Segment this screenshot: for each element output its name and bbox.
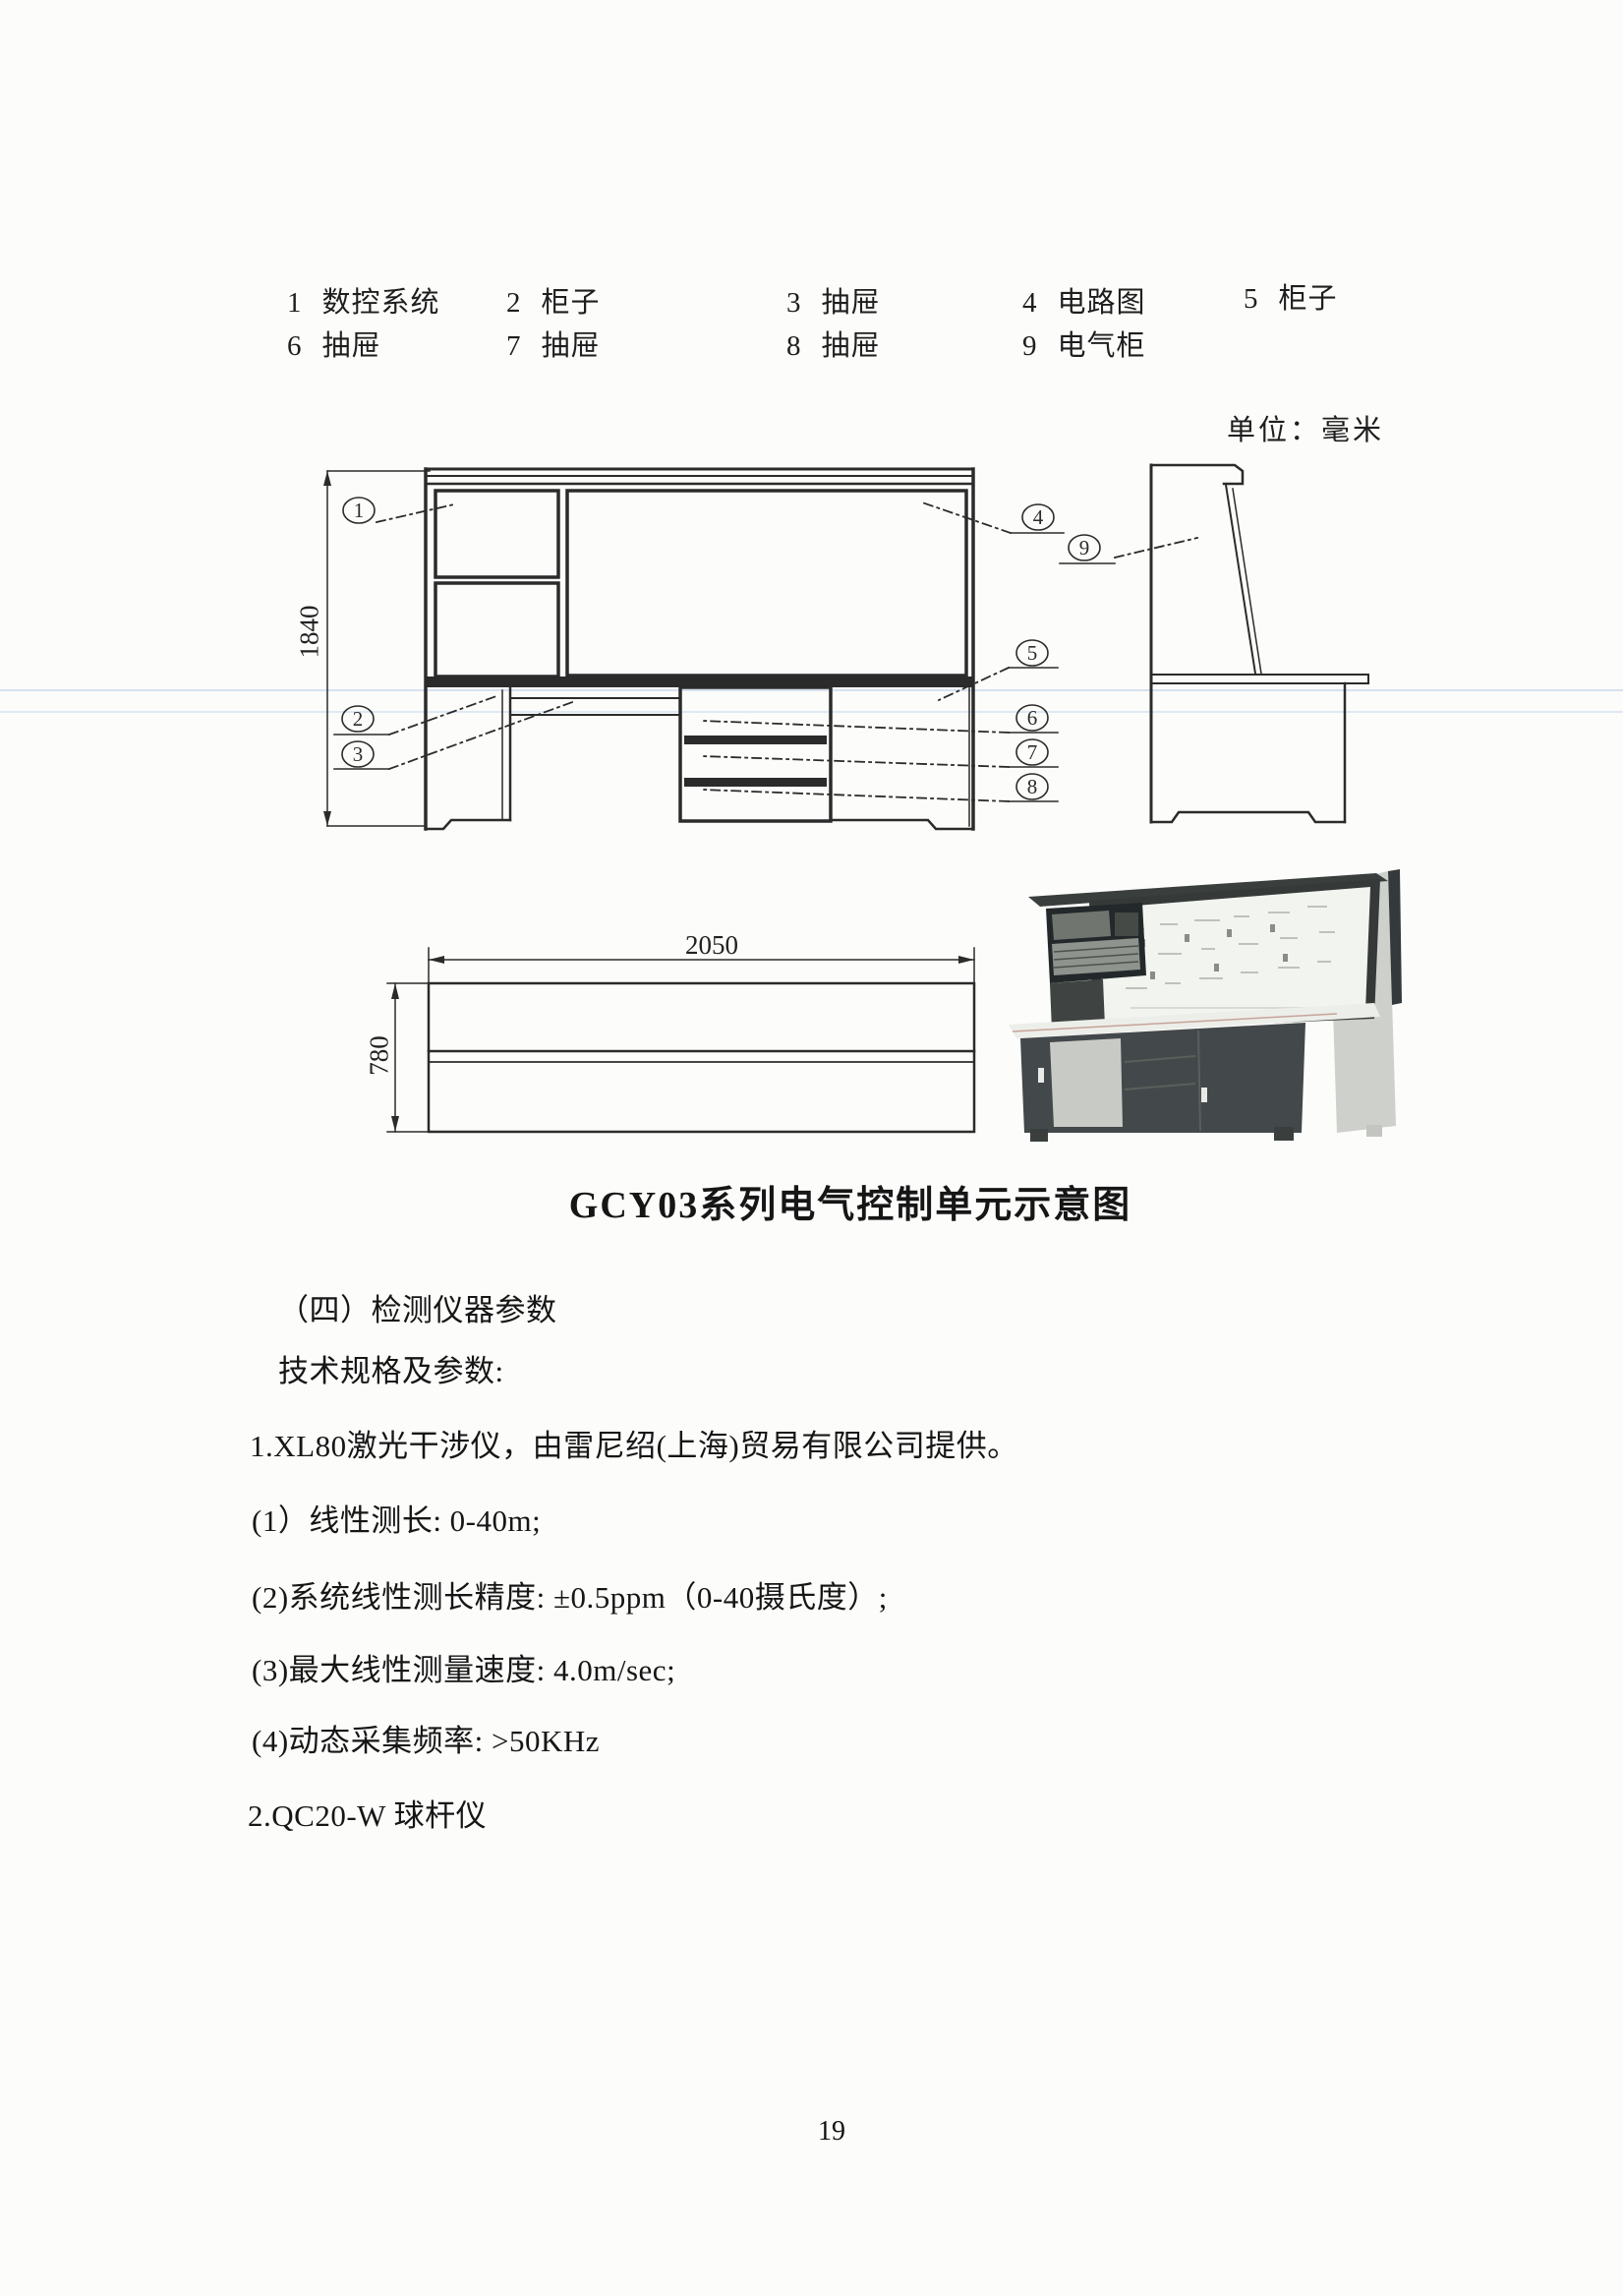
scanned-document-page: 1数控系统 2柜子 3抽屉 4电路图 5柜子 6抽屉 7抽屉 8抽屉 9电气柜 … [0,0,1623,2296]
legend-label: 抽屉 [322,330,381,362]
figure-caption: GCY03系列电气控制单元示意图 [452,1174,1248,1228]
body-line: (2)系统线性测长精度: ±0.5ppm（0-40摄氏度）; [252,1577,888,1619]
dim-depth-780: 780 [365,1012,395,1100]
callout-5: 5 [1015,640,1049,666]
legend-item: 5柜子 [1244,283,1338,315]
callout-3: 3 [341,741,375,767]
legend-label: 电路图 [1058,287,1146,319]
legend-number: 8 [786,330,802,362]
body-line: （四）检测仪器参数 [278,1290,557,1331]
legend-item: 1数控系统 [287,287,440,319]
body-line: 技术规格及参数: [278,1351,504,1392]
legend-label: 抽屉 [822,287,881,319]
product-photo [1005,863,1413,1150]
legend-number: 1 [287,287,303,319]
page-number: 19 [818,2116,845,2148]
legend-number: 9 [1022,330,1038,362]
callout-9: 9 [1068,535,1101,560]
legend-item: 2柜子 [506,287,601,319]
legend-label: 抽屉 [542,330,601,362]
legend-label: 电气柜 [1058,330,1146,362]
body-line: (3)最大线性测量速度: 4.0m/sec; [252,1650,675,1691]
legend-number: 5 [1244,283,1259,315]
unit-note: 单位：毫米 [1227,407,1384,448]
legend-number: 3 [786,287,802,319]
callout-8: 8 [1015,774,1049,799]
callout-2: 2 [341,706,375,732]
callout-1: 1 [342,498,376,523]
legend-item: 4电路图 [1022,287,1146,319]
legend-item: 8抽屉 [786,330,881,362]
legend-item: 7抽屉 [506,330,601,362]
scan-artifact-line [0,689,1623,691]
body-line: 1.XL80激光干涉仪，由雷尼绍(上海)贸易有限公司提供。 [250,1426,1018,1467]
legend-item: 9电气柜 [1022,330,1146,362]
body-line: (4)动态采集频率: >50KHz [252,1721,600,1762]
legend-label: 抽屉 [822,330,881,362]
legend-item: 3抽屉 [786,287,881,319]
body-line: 2.QC20-W 球杆仪 [248,1796,487,1837]
legend-label: 柜子 [542,287,601,319]
callout-6: 6 [1015,705,1049,731]
legend-label: 柜子 [1279,283,1338,315]
legend-label: 数控系统 [322,287,440,319]
body-line: (1）线性测长: 0-40m; [252,1501,541,1542]
legend-item: 6抽屉 [287,330,381,362]
legend-number: 7 [506,330,522,362]
legend-number: 6 [287,330,303,362]
dim-width-2050: 2050 [653,930,771,961]
legend-number: 4 [1022,287,1038,319]
callout-7: 7 [1015,739,1049,765]
scan-artifact-line [0,711,1623,713]
legend-number: 2 [506,287,522,319]
callout-4: 4 [1021,504,1055,530]
dim-height-1840: 1840 [295,588,325,677]
